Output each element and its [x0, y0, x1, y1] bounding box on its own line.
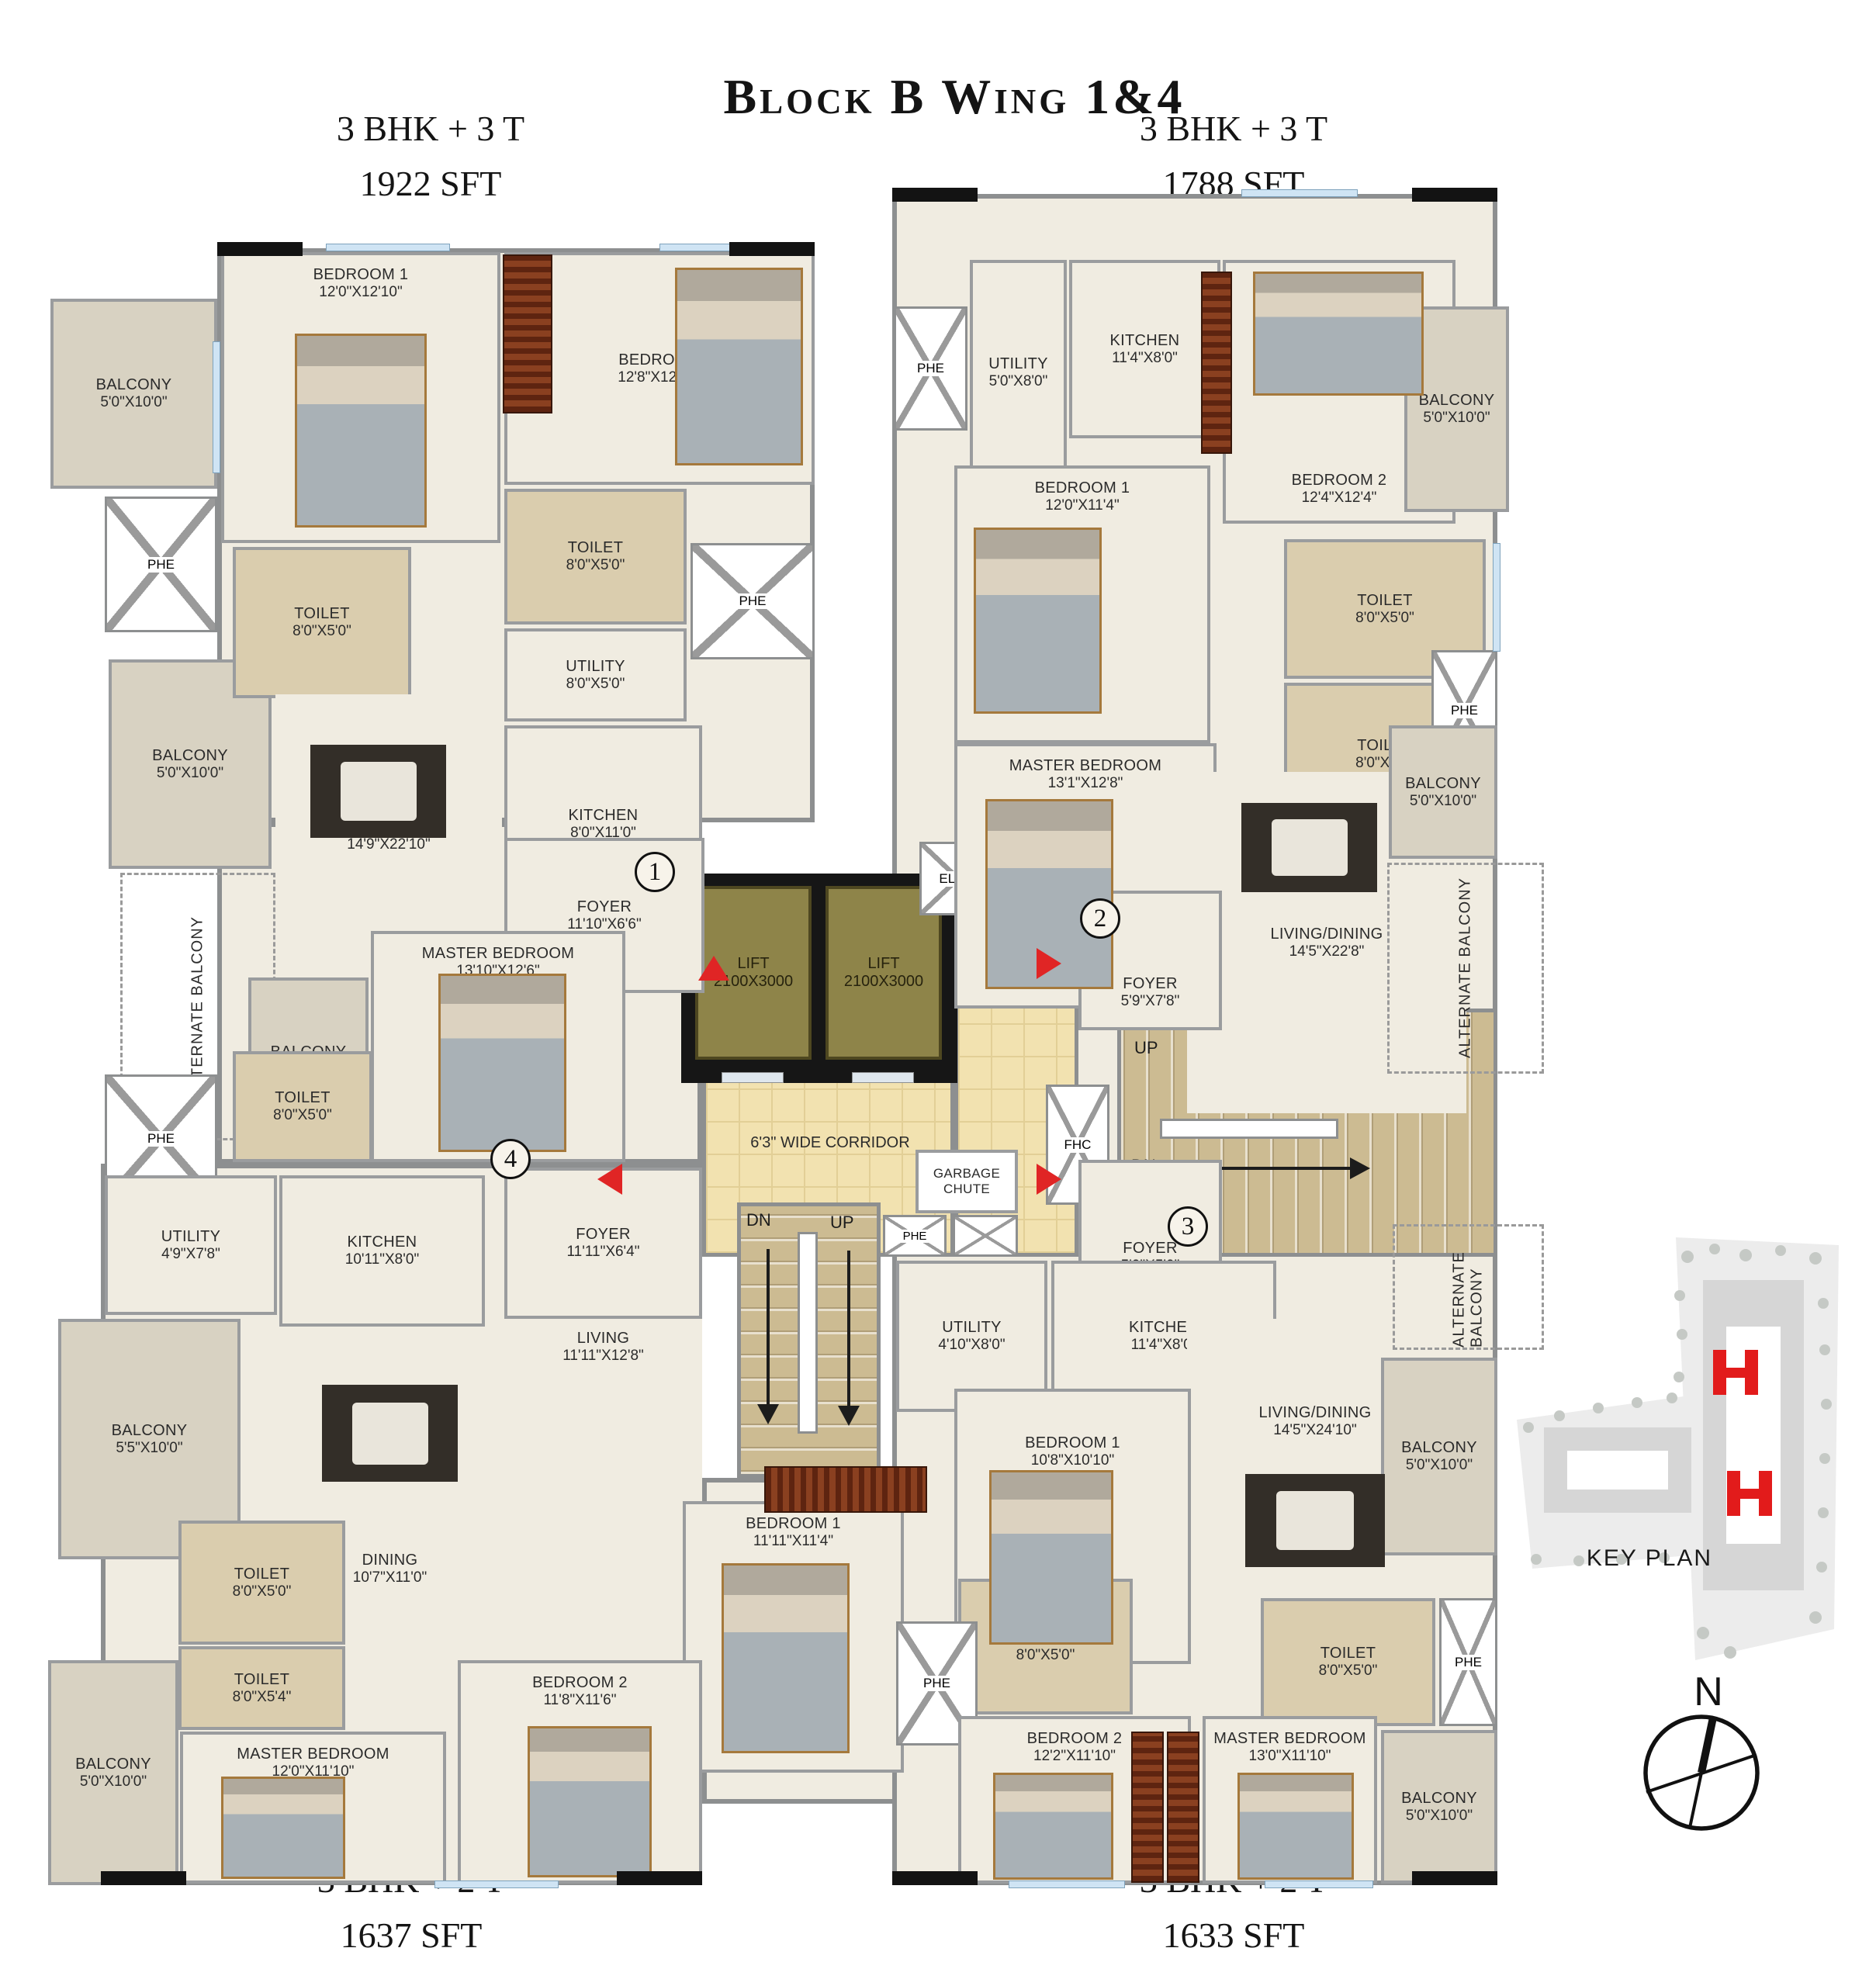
bed-u3-bedroom1 [989, 1470, 1113, 1645]
room-u1-toilet-left: TOILET8'0"X5'0" [233, 547, 411, 698]
room-u3-balcony-bottom: BALCONY5'0"X10'0" [1381, 1730, 1497, 1884]
window-u4-south [434, 1880, 559, 1888]
phe-shaft-core-bottom: PHE [883, 1215, 947, 1257]
wardrobe-u4-bedroom1 [764, 1466, 927, 1513]
room-u3-balcony-mid: BALCONY5'0"X10'0" [1381, 1358, 1497, 1555]
room-u2-utility: UTILITY5'0"X8'0" [970, 260, 1067, 485]
room-u1-toilet-right: TOILET8'0"X5'0" [504, 489, 687, 625]
phe-shaft-u3-right: PHE [1439, 1598, 1497, 1726]
room-u4-kitchen: KITCHEN10'11"X8'0" [279, 1175, 485, 1327]
wall-accent-7 [892, 1871, 978, 1885]
wall-accent-6 [617, 1871, 702, 1885]
room-u4-balcony-bottom: BALCONY5'0"X10'0" [48, 1660, 178, 1885]
stairs-left-landing [798, 1232, 818, 1434]
stairs-left-up-label: UP [830, 1213, 854, 1233]
room-u2-alternate-balcony: ALTERNATE BALCONY [1387, 863, 1544, 1074]
stairs-right-up-label: UP [1134, 1038, 1158, 1058]
room-u3-toilet-right: TOILET8'0"X5'0" [1261, 1598, 1435, 1726]
bed-u2-bedroom2 [1253, 272, 1424, 396]
lift-2-door [852, 1072, 914, 1083]
bed-u1-bedroom [675, 268, 803, 465]
dining-table-u4 [322, 1385, 458, 1482]
wardrobe-u3-b [1167, 1732, 1199, 1883]
window-u2-east [1493, 543, 1500, 652]
entry-arrow-unit3 [1037, 1164, 1061, 1195]
room-u4-living: LIVING11'11"X12'8" [504, 1319, 702, 1575]
wall-accent-5 [101, 1871, 186, 1885]
unit-1-number-badge: 1 [635, 852, 675, 892]
corridor-label: 6'3" WIDE CORRIDOR [714, 1134, 947, 1152]
wardrobe-u3-a [1131, 1732, 1164, 1883]
bed-u4-bedroom1 [722, 1563, 850, 1753]
room-u4-toilet-2: TOILET8'0"X5'4" [178, 1646, 345, 1730]
room-u2-balcony-mid: BALCONY5'0"X10'0" [1389, 725, 1497, 859]
phe-shaft-u1-left: PHE [105, 496, 217, 632]
bed-u1-bedroom1 [295, 334, 427, 528]
bed-u3-master [1237, 1773, 1354, 1880]
room-u1-balcony-1: BALCONY5'0"X10'0" [50, 299, 217, 489]
floor-plan-page: Block B Wing 1&4 3 BHK + 3 T 1922 SFT 3 … [0, 0, 1876, 1986]
dining-table-u1 [310, 745, 446, 838]
room-u4-toilet-1: TOILET8'0"X5'0" [178, 1521, 345, 1645]
window-u3-south-2 [1265, 1880, 1373, 1888]
garbage-chute: GARBAGE CHUTE [916, 1150, 1018, 1213]
dining-table-u2 [1241, 803, 1377, 892]
stairs-right-landing [1160, 1119, 1338, 1139]
unit-2-number-badge: 2 [1080, 898, 1120, 939]
stairs-left-dn-arrowhead [757, 1404, 779, 1424]
key-plan-label: KEY PLAN [1587, 1545, 1712, 1571]
phe-shaft-u1-right: PHE [691, 543, 815, 659]
unit3-area: 1633 SFT [1071, 1908, 1397, 1963]
compass-north-label: N [1694, 1669, 1723, 1714]
wall-accent-1 [217, 242, 303, 256]
unit4-area: 1637 SFT [248, 1908, 574, 1963]
room-u1-utility: UTILITY8'0"X5'0" [504, 628, 687, 721]
entry-arrow-unit2 [1037, 948, 1061, 979]
stairs-right-dn-arrowhead [1350, 1157, 1370, 1179]
bed-u4-bedroom2 [528, 1726, 652, 1877]
entry-arrow-unit4 [597, 1164, 622, 1195]
window-u2-north [1241, 189, 1358, 197]
bed-u1-master [438, 974, 566, 1152]
room-u4-utility: UTILITY4'9"X7'8" [105, 1175, 277, 1315]
dining-table-u3 [1245, 1474, 1385, 1567]
bed-u4-master [221, 1777, 345, 1879]
unit1-title: 3 BHK + 3 T 1922 SFT [268, 101, 594, 212]
key-plan-courtyard-horizontal [1567, 1451, 1668, 1489]
lift-1-door [722, 1072, 784, 1083]
window-u1-west [213, 341, 220, 473]
unit-4-number-badge: 4 [490, 1139, 531, 1179]
compass-icon [1646, 1717, 1757, 1829]
unit1-type: 3 BHK + 3 T [268, 101, 594, 156]
entry-arrow-unit1 [698, 956, 729, 981]
stairs-left-dn-arrow [767, 1249, 770, 1404]
wardrobe-u1 [503, 254, 552, 413]
unit-3-number-badge: 3 [1168, 1206, 1208, 1247]
window-u1-north [326, 244, 450, 251]
room-u2-kitchen: KITCHEN11'4"X8'0" [1069, 260, 1220, 438]
bed-u2-bedroom1 [974, 528, 1102, 714]
room-u1-toilet-3: TOILET8'0"X5'0" [233, 1051, 372, 1162]
unit2-type: 3 BHK + 3 T [1071, 101, 1397, 156]
stairs-left-up-arrow [847, 1251, 850, 1406]
unit1-area: 1922 SFT [268, 156, 594, 211]
stairs-left-up-arrowhead [838, 1406, 860, 1426]
key-plan: KEY PLAN N [1513, 1195, 1876, 1862]
bed-u3-bedroom2 [993, 1773, 1113, 1880]
stairs-left-dn-label: DN [746, 1210, 771, 1230]
wall-accent-2 [729, 242, 815, 256]
wardrobe-u2 [1201, 272, 1232, 454]
wall-accent-4 [1412, 188, 1497, 202]
shaft-core-x [953, 1215, 1018, 1257]
wall-accent-8 [1412, 1871, 1497, 1885]
window-u3-south [1009, 1880, 1125, 1888]
phe-shaft-u2-top: PHE [894, 306, 967, 431]
wall-accent-3 [892, 188, 978, 202]
